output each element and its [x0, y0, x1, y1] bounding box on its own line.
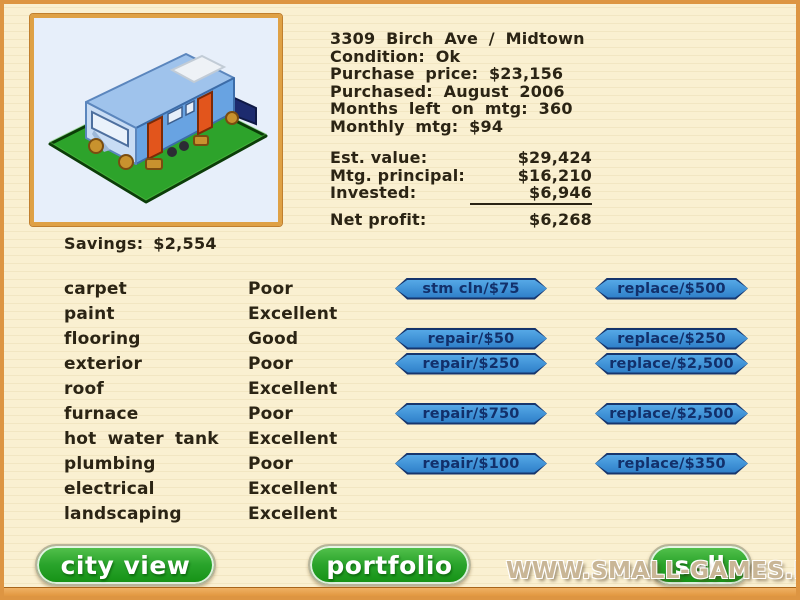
component-condition: Poor: [248, 279, 395, 299]
net-profit-label: Net profit:: [330, 211, 427, 229]
row-furnace: furnace Poor repair/$750 replace/$2,500: [64, 401, 748, 426]
invested-row: Invested: $6,946: [330, 184, 592, 205]
component-condition: Excellent: [248, 379, 395, 399]
city-view-button[interactable]: city view: [35, 544, 216, 586]
row-electrical: electrical Excellent: [64, 476, 748, 501]
sell-button[interactable]: sell: [648, 544, 752, 586]
net-profit-row: Net profit: $6,268: [330, 211, 592, 229]
trailer-icon: [34, 18, 278, 222]
net-profit: $6,268: [529, 211, 592, 229]
component-name: electrical: [64, 479, 248, 499]
purchase-date: Purchased: August 2006: [330, 83, 585, 101]
mtg-principal: $16,210: [518, 167, 592, 185]
portfolio-button[interactable]: portfolio: [308, 544, 471, 586]
repair-exterior-label: repair/$250: [395, 355, 547, 373]
component-name: paint: [64, 304, 248, 324]
component-condition: Excellent: [248, 304, 395, 324]
repair-furnace-button[interactable]: repair/$750: [395, 403, 547, 425]
component-list: carpet Poor stm cln/$75 replace/$500 pai…: [64, 276, 748, 526]
replace-exterior-label: replace/$2,500: [595, 355, 748, 373]
steam-clean-carpet-button[interactable]: stm cln/$75: [395, 278, 547, 300]
component-name: exterior: [64, 354, 248, 374]
replace-furnace-button[interactable]: replace/$2,500: [595, 403, 748, 425]
property-address: 3309 Birch Ave / Midtown: [330, 30, 585, 48]
invested-label: Invested:: [330, 184, 416, 205]
repair-plumbing-button[interactable]: repair/$100: [395, 453, 547, 475]
component-name: roof: [64, 379, 248, 399]
component-name: flooring: [64, 329, 248, 349]
component-condition: Excellent: [248, 429, 395, 449]
component-name: carpet: [64, 279, 248, 299]
row-exterior: exterior Poor repair/$250 replace/$2,500: [64, 351, 748, 376]
row-landscaping: landscaping Excellent: [64, 501, 748, 526]
replace-carpet-button[interactable]: replace/$500: [595, 278, 748, 300]
repair-plumbing-label: repair/$100: [395, 455, 547, 473]
mtg-principal-row: Mtg. principal: $16,210: [330, 167, 592, 185]
months-left-mortgage: Months left on mtg: 360: [330, 100, 585, 118]
property-info-block: 3309 Birch Ave / Midtown Condition: Ok P…: [330, 30, 585, 135]
component-condition: Excellent: [248, 479, 395, 499]
mtg-principal-label: Mtg. principal:: [330, 167, 465, 185]
invested-value: $6,946: [470, 184, 592, 205]
component-name: landscaping: [64, 504, 248, 524]
repair-furnace-label: repair/$750: [395, 405, 547, 423]
est-value-row: Est. value: $29,424: [330, 149, 592, 167]
component-condition: Excellent: [248, 504, 395, 524]
replace-flooring-label: replace/$250: [595, 330, 748, 348]
replace-carpet-label: replace/$500: [595, 280, 748, 298]
property-photo-frame: [30, 14, 282, 226]
window-bottom-bar: [0, 587, 800, 600]
monthly-mortgage: Monthly mtg: $94: [330, 118, 585, 136]
component-condition: Good: [248, 329, 395, 349]
repair-flooring-label: repair/$50: [395, 330, 547, 348]
purchase-price: Purchase price: $23,156: [330, 65, 585, 83]
component-name: plumbing: [64, 454, 248, 474]
replace-plumbing-button[interactable]: replace/$350: [595, 453, 748, 475]
component-condition: Poor: [248, 354, 395, 374]
property-condition: Condition: Ok: [330, 48, 585, 66]
replace-exterior-button[interactable]: replace/$2,500: [595, 353, 748, 375]
component-condition: Poor: [248, 454, 395, 474]
financial-summary: Est. value: $29,424 Mtg. principal: $16,…: [330, 149, 592, 228]
component-name: hot water tank: [64, 429, 248, 449]
est-value: $29,424: [518, 149, 592, 167]
row-hot-water-tank: hot water tank Excellent: [64, 426, 748, 451]
row-carpet: carpet Poor stm cln/$75 replace/$500: [64, 276, 748, 301]
steam-clean-carpet-label: stm cln/$75: [395, 280, 547, 298]
replace-plumbing-label: replace/$350: [595, 455, 748, 473]
row-roof: roof Excellent: [64, 376, 748, 401]
replace-furnace-label: replace/$2,500: [595, 405, 748, 423]
replace-flooring-button[interactable]: replace/$250: [595, 328, 748, 350]
row-plumbing: plumbing Poor repair/$100 replace/$350: [64, 451, 748, 476]
row-paint: paint Excellent: [64, 301, 748, 326]
repair-exterior-button[interactable]: repair/$250: [395, 353, 547, 375]
savings-amount: Savings: $2,554: [64, 234, 217, 253]
component-name: furnace: [64, 404, 248, 424]
repair-flooring-button[interactable]: repair/$50: [395, 328, 547, 350]
row-flooring: flooring Good repair/$50 replace/$250: [64, 326, 748, 351]
component-condition: Poor: [248, 404, 395, 424]
est-value-label: Est. value:: [330, 149, 427, 167]
